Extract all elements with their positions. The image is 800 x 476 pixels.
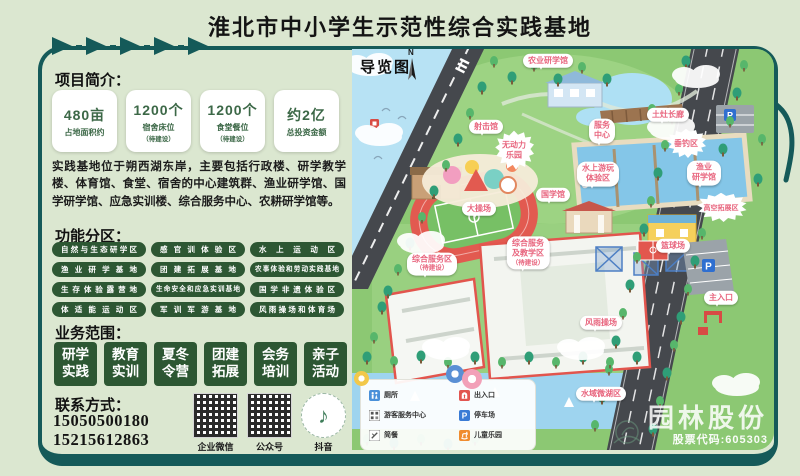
zone-pill: 生命安全和应急实训基地 (151, 282, 245, 297)
label-text: 综合服务区 (412, 255, 452, 264)
stat-value: 约2亿 (287, 105, 326, 125)
douyin-logo-icon: ♪ (301, 393, 346, 438)
project-description: 实践基地位于朔西湖东岸，主要包括行政楼、研学教学楼、体育馆、食堂、宿舍的中心建筑… (52, 159, 346, 211)
stat-value: 480亩 (64, 105, 105, 125)
business-line: 令营 (162, 364, 189, 381)
map-label-fishery-hall: 渔业 研学馆 (687, 161, 721, 186)
watermark-logo-icon (610, 417, 644, 447)
stat-card-area: 480亩 占地面积约 (52, 90, 117, 152)
stat-card-investment: 约2亿 总投资金额 (274, 90, 339, 152)
zone-pill: 国学非遗体验区 (250, 282, 344, 297)
label-text: 土灶长廊 (652, 110, 684, 119)
zones-grid: 自然与生态研学区 感官训体验区 水上运动区 渔业研学基地 团建拓展基地 农事体验… (52, 242, 344, 317)
business-box: 团建拓展 (204, 342, 247, 386)
business-line: 教育 (112, 347, 139, 364)
stat-label: 食堂餐位 (217, 122, 249, 133)
dash (144, 45, 150, 48)
map-label-stove-corridor: 土灶长廊 (647, 108, 689, 122)
legend-label: 儿童乐园 (474, 430, 502, 440)
zone-pill: 自然与生态研学区 (52, 242, 146, 257)
parking-lot-north: P (716, 105, 754, 133)
business-line: 实践 (62, 364, 89, 381)
arrow-decoration (52, 37, 208, 55)
label-text: 水上游玩 体验区 (582, 164, 614, 183)
dash (76, 45, 82, 48)
legend-label: 停车场 (474, 410, 495, 420)
label-text: 国学馆 (541, 190, 565, 199)
zone-pill: 感官训体验区 (151, 242, 245, 257)
stat-card-beds: 1200个 宿舍床位 （待建设） (126, 90, 191, 152)
label-note: （待建设） (412, 265, 452, 273)
svg-text:P: P (462, 411, 468, 420)
business-box: 教育实训 (104, 342, 147, 386)
business-heading: 业务范围： (55, 322, 130, 343)
stat-label: 总投资金额 (287, 127, 327, 138)
meal-icon (369, 430, 380, 441)
dash (110, 45, 116, 48)
label-text: 垂钓区 (674, 139, 698, 148)
entrance-icon (459, 390, 470, 401)
map-label-sports-track: 大操场 (462, 202, 496, 216)
legend-item-children-park: 儿童乐园 (459, 425, 527, 445)
zone-pill: 渔业研学基地 (52, 262, 146, 277)
zone-pill: 体适能运动区 (52, 302, 146, 317)
label-text: 农业研学馆 (528, 56, 568, 65)
map-label-agriculture-hall: 农业研学馆 (523, 54, 573, 68)
phone-numbers: 15050500180 15215612863 (53, 412, 149, 450)
map-label-lake-area: 水域微湖区 (576, 387, 626, 401)
label-text: 风雨操场 (585, 318, 617, 327)
map-legend: 厕所 游客服务中心 简餐 出入口 P 停车场 儿童乐园 (360, 379, 536, 450)
watermark-stock-code: 股票代码:605303 (648, 431, 768, 447)
map-label-main-gate: 主入口 (704, 291, 738, 305)
business-line: 实训 (112, 364, 139, 381)
qr-official-account: 公众号 (247, 393, 292, 453)
label-text: 篮球场 (661, 241, 685, 250)
map-label-basketball: 篮球场 (656, 239, 690, 253)
legend-item-visitor-center: 游客服务中心 (369, 405, 451, 425)
arrow-icon (86, 37, 106, 55)
map-label-covered-playground: 风雨操场 (580, 316, 622, 330)
business-line: 亲子 (312, 347, 339, 364)
arrow-icon (120, 37, 140, 55)
zone-pill: 军训军游基地 (151, 302, 245, 317)
stat-label: 占地面积约 (65, 127, 105, 138)
stat-label: 宿舍床位 (143, 122, 175, 133)
legend-item-toilet: 厕所 (369, 385, 451, 405)
qr-code-image (193, 393, 238, 438)
phone-number: 15050500180 (53, 412, 149, 431)
map-label-water-play: 水上游玩 体验区 (577, 162, 619, 187)
map-label-guoxue-hall: 国学馆 (536, 188, 570, 202)
map-label-shooting-hall: 射击馆 (469, 120, 503, 134)
stat-value: 1200个 (133, 100, 183, 120)
arrow-icon (188, 37, 208, 55)
label-text: 高空拓展区 (704, 205, 739, 212)
label-text: 服务 中心 (594, 121, 610, 140)
label-text: 渔业 研学馆 (692, 163, 716, 182)
label-text: 大操场 (467, 204, 491, 213)
business-line: 培训 (262, 364, 289, 381)
qr-label: 公众号 (256, 440, 283, 453)
zone-pill: 团建拓展基地 (151, 262, 245, 277)
legend-item-parking: P 停车场 (459, 405, 527, 425)
intro-heading: 项目简介： (55, 69, 130, 90)
business-line: 夏冬 (162, 347, 189, 364)
map-title: 导览图 (360, 56, 411, 77)
business-row: 研学实践 教育实训 夏冬令营 团建拓展 会务培训 亲子活动 (54, 342, 347, 386)
business-box: 研学实践 (54, 342, 97, 386)
qr-label: 抖音 (314, 440, 332, 453)
dash (178, 45, 184, 48)
guide-map: P P (352, 49, 774, 450)
flower-icon (462, 369, 482, 389)
map-label-teaching-block: 综合服务 及教学区（待建设） (507, 236, 550, 269)
arrow-icon (154, 37, 174, 55)
toilet-icon (369, 390, 380, 401)
qr-label: 企业微信 (197, 440, 233, 453)
business-line: 活动 (312, 364, 339, 381)
map-label-service-block: 综合服务区（待建设） (407, 253, 457, 276)
svg-text:P: P (705, 262, 712, 273)
legend-item-meal: 简餐 (369, 425, 451, 445)
zone-pill: 风雨操场和体育场 (250, 302, 344, 317)
business-box: 亲子活动 (304, 342, 347, 386)
parking-icon: P (459, 410, 470, 421)
visitor-center-icon (369, 410, 380, 421)
zone-pill: 生存体验露营地 (52, 282, 146, 297)
stat-value: 1200个 (207, 100, 257, 120)
phone-number: 15215612863 (53, 431, 149, 450)
business-line: 会务 (262, 347, 289, 364)
label-text: 综合服务 及教学区 (512, 238, 544, 257)
arrow-icon (52, 37, 72, 55)
label-text: 水域微湖区 (581, 389, 621, 398)
label-note: （待建设） (512, 259, 545, 267)
business-box: 夏冬令营 (154, 342, 197, 386)
label-text: 主入口 (709, 293, 733, 302)
map-label-service-center: 服务 中心 (589, 119, 615, 144)
qr-row: 企业微信 公众号 ♪ 抖音 (193, 393, 346, 453)
business-line: 研学 (62, 347, 89, 364)
qr-douyin: ♪ 抖音 (301, 393, 346, 453)
business-line: 拓展 (212, 364, 239, 381)
watermark: 园林股份 股票代码:605303 (610, 405, 768, 447)
business-line: 团建 (212, 347, 239, 364)
zone-pill: 农事体验和劳动实践基地 (250, 262, 344, 277)
rocking-horse-icon (459, 430, 470, 441)
qr-wechat-work: 企业微信 (193, 393, 238, 453)
legend-label: 厕所 (384, 390, 398, 400)
compass-north-label: N (408, 49, 414, 57)
legend-label: 简餐 (384, 430, 398, 440)
qr-code-image (247, 393, 292, 438)
stat-note: （待建设） (142, 133, 175, 143)
stat-note: （待建设） (216, 133, 249, 143)
label-text: 无动力 乐园 (502, 141, 526, 160)
stat-card-seats: 1200个 食堂餐位 （待建设） (200, 90, 265, 152)
watermark-company: 园林股份 (648, 405, 768, 431)
stats-row: 480亩 占地面积约 1200个 宿舍床位 （待建设） 1200个 食堂餐位 （… (52, 90, 339, 152)
label-text: 射击馆 (474, 122, 498, 131)
zone-pill: 水上运动区 (250, 242, 344, 257)
flower-icon (354, 371, 369, 386)
legend-label: 游客服务中心 (384, 410, 426, 420)
legend-label: 出入口 (474, 390, 495, 400)
business-box: 会务培训 (254, 342, 297, 386)
